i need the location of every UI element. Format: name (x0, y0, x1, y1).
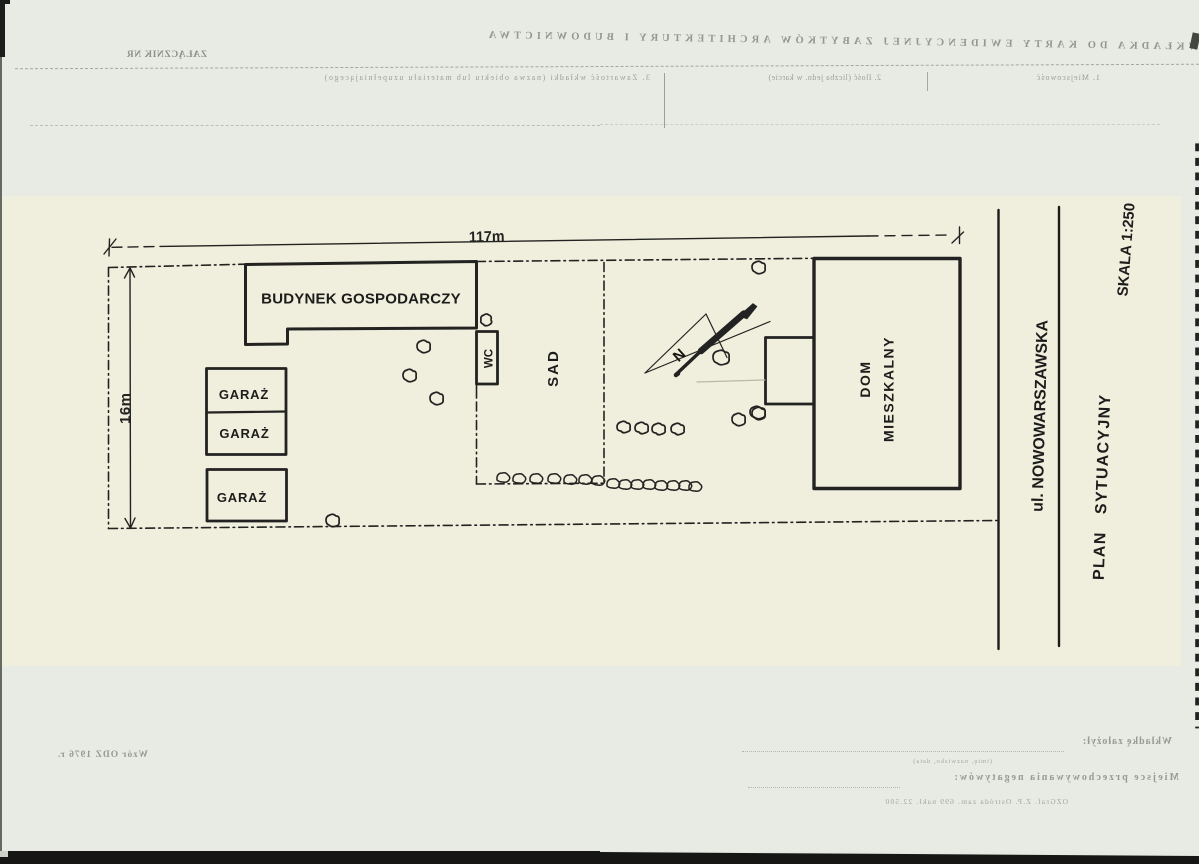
svg-text:WC: WC (484, 349, 496, 368)
svg-text:BUDYNEK GOSPODARCZY: BUDYNEK GOSPODARCZY (261, 291, 461, 308)
svg-text:SAD: SAD (545, 349, 562, 387)
svg-text:MIESZKALNY: MIESZKALNY (881, 336, 897, 442)
svg-text:DOM: DOM (857, 360, 873, 397)
svg-text:117m: 117m (469, 229, 505, 246)
svg-text:GARAŻ: GARAŻ (219, 426, 269, 441)
svg-text:16m: 16m (117, 392, 134, 424)
svg-text:SKALA 1:250: SKALA 1:250 (1114, 202, 1138, 297)
svg-text:PLAN SYTUACYJNY: PLAN SYTUACYJNY (1091, 393, 1115, 580)
svg-text:ul. NOWOWARSZAWSKA: ul. NOWOWARSZAWSKA (1029, 319, 1051, 512)
svg-text:GARAŻ: GARAŻ (219, 387, 269, 402)
svg-text:GARAŻ: GARAŻ (217, 490, 267, 505)
